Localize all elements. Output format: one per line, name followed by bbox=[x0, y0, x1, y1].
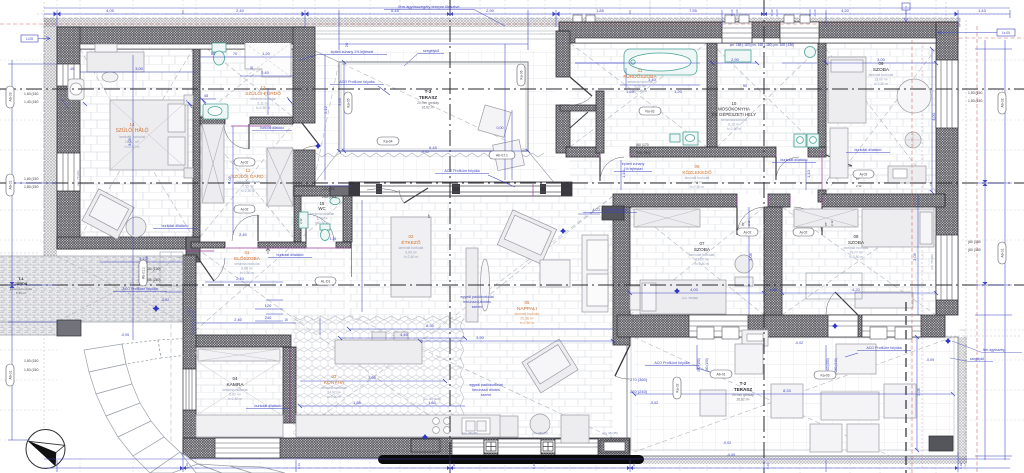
svg-text:5,05: 5,05 bbox=[227, 175, 232, 184]
svg-text:épített zuhany 1% lejtéssel: épített zuhany 1% lejtéssel bbox=[331, 50, 374, 54]
svg-text:3,05: 3,05 bbox=[912, 252, 917, 261]
svg-text:4,20: 4,20 bbox=[841, 8, 850, 13]
svg-text:kerámia burkolat: kerámia burkolat bbox=[222, 388, 247, 392]
svg-text:7,47 m²: 7,47 m² bbox=[691, 181, 703, 185]
svg-text:pm. 78 (90): pm. 78 (90) bbox=[930, 254, 934, 269]
svg-text:14: 14 bbox=[129, 122, 135, 127]
svg-text:KÖZLEKEDŐ: KÖZLEKEDŐ bbox=[682, 169, 712, 176]
svg-text:3,00: 3,00 bbox=[135, 66, 144, 71]
svg-text:70,60: 70,60 bbox=[770, 9, 774, 16]
svg-text:100 (90(: 100 (90( bbox=[322, 187, 335, 191]
svg-text:210 (200): 210 (200) bbox=[826, 358, 830, 372]
svg-text:245 (240(: 245 (240( bbox=[636, 151, 651, 155]
svg-text:02: 02 bbox=[409, 234, 414, 239]
svg-text:0,00: 0,00 bbox=[497, 126, 504, 130]
svg-text:fém ágyösszegély terepre illes: fém ágyösszegély terepre illesztve bbox=[398, 4, 460, 9]
svg-text:Nu-02: Nu-02 bbox=[645, 110, 654, 114]
svg-text:laminált burkolat: laminált burkolat bbox=[119, 135, 145, 139]
svg-text:3,05: 3,05 bbox=[127, 137, 132, 146]
svg-text:245 (240(: 245 (240( bbox=[322, 195, 337, 199]
svg-text:10: 10 bbox=[732, 101, 737, 106]
svg-text:burkolat dilatáció: burkolat dilatáció bbox=[255, 404, 282, 408]
svg-text:Aj-02: Aj-02 bbox=[241, 161, 249, 165]
svg-text:-0,02: -0,02 bbox=[421, 150, 429, 154]
svg-text:Ka-03: Ka-03 bbox=[820, 374, 829, 378]
svg-text:h=2,80 m: h=2,80 m bbox=[240, 271, 254, 275]
svg-text:kerámia burkolat: kerámia burkolat bbox=[721, 118, 746, 122]
svg-text:2,40: 2,40 bbox=[236, 8, 245, 13]
svg-text:270 (360): 270 (360) bbox=[630, 377, 648, 382]
svg-text:8,88 m²: 8,88 m² bbox=[241, 267, 253, 271]
svg-text:180 (150): 180 (150) bbox=[705, 358, 709, 372]
svg-text:245 (240): 245 (240) bbox=[146, 278, 161, 282]
svg-text:pm. 78 (90): pm. 78 (90) bbox=[76, 170, 80, 185]
svg-text:1,80 (150: 1,80 (150 bbox=[24, 185, 38, 189]
svg-text:h=2,80 m: h=2,80 m bbox=[256, 106, 270, 110]
svg-text:45: 45 bbox=[70, 67, 74, 71]
svg-text:5,11 m²: 5,11 m² bbox=[257, 102, 269, 106]
svg-text:kerámia burkolat: kerámia burkolat bbox=[321, 386, 346, 390]
svg-text:TERASZ: TERASZ bbox=[734, 387, 753, 392]
svg-text:1,65: 1,65 bbox=[626, 89, 635, 94]
svg-text:laminált burkolat: laminált burkolat bbox=[515, 312, 540, 316]
svg-text:8,18: 8,18 bbox=[452, 463, 456, 469]
svg-text:70,60: 70,60 bbox=[730, 9, 734, 16]
svg-text:pm. 168 (-180) pm. 168 (-180: pm. 168 (-180) pm. 168 (-180) pm. 168 (-… bbox=[730, 43, 795, 47]
svg-text:23,60: 23,60 bbox=[775, 9, 779, 16]
svg-text:Ka-04: Ka-04 bbox=[383, 140, 392, 144]
svg-text:2,90: 2,90 bbox=[731, 57, 740, 62]
svg-text:1,20: 1,20 bbox=[674, 89, 683, 94]
svg-text:burkolat dilatáció: burkolat dilatáció bbox=[781, 158, 808, 162]
svg-text:1,43: 1,43 bbox=[978, 8, 987, 13]
svg-text:kerámia burkolat: kerámia burkolat bbox=[310, 212, 334, 216]
svg-text:h=2,60 m: h=2,60 m bbox=[327, 395, 341, 399]
svg-text:-0,02: -0,02 bbox=[650, 401, 658, 405]
svg-text:h=2,80 m: h=2,80 m bbox=[520, 321, 534, 325]
svg-text:h=2,80 m: h=2,80 m bbox=[228, 397, 242, 401]
svg-text:Aj-02: Aj-02 bbox=[744, 231, 752, 235]
svg-text:szegélykő: szegélykő bbox=[423, 49, 439, 53]
svg-text:fém ágyösszeg.: fém ágyösszeg. bbox=[983, 348, 1005, 352]
svg-text:épített zuhany: épített zuhany bbox=[622, 162, 645, 166]
svg-text:3,05: 3,05 bbox=[748, 252, 753, 261]
svg-text:35: 35 bbox=[250, 66, 254, 70]
svg-text:260 (240): 260 (240) bbox=[630, 389, 648, 394]
svg-text:06: 06 bbox=[695, 164, 700, 169]
svg-text:egyedi padlóburkolat: egyedi padlóburkolat bbox=[460, 295, 493, 299]
svg-text:2: 2 bbox=[905, 5, 907, 9]
svg-text:13,77 m²: 13,77 m² bbox=[849, 251, 863, 255]
svg-text:(60 (150: (60 (150 bbox=[968, 240, 981, 244]
svg-text:9,16 m²: 9,16 m² bbox=[634, 85, 646, 89]
svg-text:(60 (170: (60 (170 bbox=[636, 143, 649, 147]
svg-text:12: 12 bbox=[246, 168, 251, 173]
svg-text:szerint: szerint bbox=[481, 393, 492, 397]
svg-text:Aj-02: Aj-02 bbox=[241, 208, 249, 212]
svg-text:1,20: 1,20 bbox=[262, 51, 271, 56]
svg-text:SZÜLŐI GARD.: SZÜLŐI GARD. bbox=[231, 173, 265, 180]
svg-text:4,05: 4,05 bbox=[106, 8, 115, 13]
svg-text:8,10: 8,10 bbox=[185, 463, 189, 469]
svg-text:Li-05: Li-05 bbox=[26, 37, 33, 41]
svg-text:20: 20 bbox=[344, 42, 349, 47]
svg-text:08: 08 bbox=[854, 234, 859, 239]
svg-text:laminált burkolat: laminált burkolat bbox=[844, 246, 869, 250]
svg-text:04: 04 bbox=[233, 376, 238, 381]
svg-text:70: 70 bbox=[233, 51, 238, 56]
svg-text:14,67 m²: 14,67 m² bbox=[327, 391, 341, 395]
svg-text:50: 50 bbox=[211, 51, 216, 56]
svg-text:-0,09: -0,09 bbox=[727, 453, 735, 457]
svg-text:8,10: 8,10 bbox=[959, 463, 963, 469]
svg-text:20 mm greslap: 20 mm greslap bbox=[732, 393, 754, 397]
svg-text:3,40: 3,40 bbox=[648, 77, 657, 82]
svg-text:ACO ProfiLine folyóka: ACO ProfiLine folyóka bbox=[339, 80, 374, 84]
svg-text:MOSÓKONYHA: MOSÓKONYHA bbox=[718, 107, 750, 112]
svg-text:-0,02: -0,02 bbox=[161, 298, 169, 302]
svg-text:4,40: 4,40 bbox=[400, 332, 409, 337]
svg-text:1,60: 1,60 bbox=[428, 400, 437, 405]
svg-text:3,90: 3,90 bbox=[476, 335, 485, 340]
svg-text:87°: 87° bbox=[824, 222, 828, 226]
svg-text:13: 13 bbox=[261, 85, 266, 90]
svg-text:2,40: 2,40 bbox=[234, 317, 243, 322]
svg-text:Ka-02: Ka-02 bbox=[676, 383, 680, 392]
svg-text:6,45: 6,45 bbox=[429, 145, 438, 150]
svg-text:ÉS GÉPÉSZETI HELY: ÉS GÉPÉSZETI HELY bbox=[712, 112, 756, 117]
svg-text:160 (150): 160 (150) bbox=[697, 358, 701, 372]
svg-text:05: 05 bbox=[525, 300, 530, 305]
svg-text:2,12: 2,12 bbox=[856, 184, 862, 188]
svg-text:ACO ProfiLine folyóka: ACO ProfiLine folyóka bbox=[444, 169, 479, 173]
svg-text:ACO ProfiLine folyóka: ACO ProfiLine folyóka bbox=[592, 208, 627, 212]
svg-text:2,40: 2,40 bbox=[261, 70, 270, 75]
svg-text:6,45: 6,45 bbox=[391, 8, 400, 13]
svg-text:1,10: 1,10 bbox=[806, 169, 811, 178]
svg-text:h=2,80 m: h=2,80 m bbox=[727, 127, 741, 131]
svg-text:burkolat dilatáció: burkolat dilatáció bbox=[855, 148, 882, 152]
svg-text:beruházói döntés: beruházói döntés bbox=[463, 300, 491, 304]
svg-text:120: 120 bbox=[265, 303, 272, 308]
svg-text:laminált burkolat: laminált burkolat bbox=[685, 176, 710, 180]
svg-text:13,00 m²: 13,00 m² bbox=[874, 78, 888, 82]
svg-text:burkolat dilatáció: burkolat dilatáció bbox=[260, 126, 284, 130]
svg-text:h=2,80 m: h=2,80 m bbox=[849, 255, 863, 259]
svg-text:1,85: 1,85 bbox=[353, 400, 362, 405]
svg-text:Lx-05: Lx-05 bbox=[1002, 31, 1010, 35]
svg-text:1,40 (150: 1,40 (150 bbox=[24, 100, 38, 104]
svg-text:h=2,80 m: h=2,80 m bbox=[241, 189, 255, 193]
svg-text:03: 03 bbox=[332, 374, 337, 379]
svg-text:6,36 m²: 6,36 m² bbox=[16, 291, 26, 295]
svg-text:2,40: 2,40 bbox=[186, 307, 191, 316]
svg-text:8,33: 8,33 bbox=[783, 388, 792, 393]
svg-text:1% lejtéssel: 1% lejtéssel bbox=[623, 167, 642, 171]
svg-text:1,35: 1,35 bbox=[330, 237, 337, 241]
svg-text:burkolat dilatáció: burkolat dilatáció bbox=[162, 224, 189, 228]
svg-text:1,10: 1,10 bbox=[621, 169, 626, 178]
svg-text:h=2,60 m: h=2,60 m bbox=[404, 255, 418, 259]
svg-text:laminált burkolat: laminált burkolat bbox=[869, 73, 894, 77]
svg-text:7,55: 7,55 bbox=[689, 8, 698, 13]
svg-text:egyedi padlóburkolat: egyedi padlóburkolat bbox=[469, 383, 502, 387]
svg-text:AL-D1: AL-D1 bbox=[321, 280, 331, 284]
svg-text:90: 90 bbox=[743, 83, 748, 88]
svg-text:7,53 m²: 7,53 m² bbox=[242, 185, 254, 189]
svg-text:45: 45 bbox=[204, 93, 209, 98]
svg-text:25,38 m²: 25,38 m² bbox=[520, 317, 534, 321]
svg-text:-0,02: -0,02 bbox=[723, 441, 731, 445]
svg-text:-0,05: -0,05 bbox=[121, 333, 129, 337]
svg-text:pm. 38 (45): pm. 38 (45) bbox=[602, 431, 617, 435]
svg-text:87°: 87° bbox=[741, 222, 745, 226]
svg-text:4,00: 4,00 bbox=[931, 112, 936, 121]
svg-text:h=2,80 m: h=2,80 m bbox=[874, 82, 888, 86]
svg-text:2,90: 2,90 bbox=[486, 8, 495, 13]
svg-text:4,20: 4,20 bbox=[852, 287, 861, 292]
svg-text:pm. 38 (45): pm. 38 (45) bbox=[462, 431, 477, 435]
svg-text:1,00: 1,00 bbox=[769, 287, 778, 292]
svg-text:Ab-01: Ab-01 bbox=[9, 180, 13, 189]
svg-text:8,30: 8,30 bbox=[426, 323, 435, 328]
svg-text:20 mm greslap: 20 mm greslap bbox=[417, 101, 439, 105]
svg-text:3,00: 3,00 bbox=[877, 57, 886, 62]
svg-text:JÁRDA: JÁRDA bbox=[14, 281, 27, 286]
svg-text:pm. 38 (45): pm. 38 (45) bbox=[532, 431, 547, 435]
svg-text:2,12: 2,12 bbox=[299, 218, 303, 224]
svg-text:2,12: 2,12 bbox=[747, 220, 751, 226]
svg-text:SZÜLŐI HÁLÓ: SZÜLŐI HÁLÓ bbox=[115, 127, 148, 134]
svg-text:Ka-05: Ka-05 bbox=[347, 98, 351, 107]
svg-text:23,60: 23,60 bbox=[813, 9, 817, 16]
svg-text:Ab-07.1: Ab-07.1 bbox=[496, 154, 508, 158]
svg-text:6,12 m²: 6,12 m² bbox=[728, 123, 740, 127]
svg-text:Aj-02: Aj-02 bbox=[860, 173, 868, 177]
svg-text:9,65 m²: 9,65 m² bbox=[405, 251, 417, 255]
svg-text:beruházói döntés: beruházói döntés bbox=[472, 388, 500, 392]
svg-text:1,70 m²: 1,70 m² bbox=[316, 217, 328, 221]
svg-text:3,69: 3,69 bbox=[368, 375, 377, 380]
svg-text:Ab-01: Ab-01 bbox=[9, 370, 13, 379]
svg-text:130 (120): 130 (120) bbox=[146, 267, 161, 271]
svg-text:ÉTKEZŐ: ÉTKEZŐ bbox=[401, 239, 420, 246]
svg-text:1,50 (150: 1,50 (150 bbox=[968, 99, 982, 103]
svg-text:-0,09: -0,09 bbox=[926, 358, 934, 362]
svg-text:laminált burkolat: laminált burkolat bbox=[399, 246, 424, 250]
svg-text:2,40: 2,40 bbox=[236, 276, 245, 281]
svg-text:Ka-06: Ka-06 bbox=[520, 70, 524, 79]
svg-text:ACO ProfiLine folyóka: ACO ProfiLine folyóka bbox=[654, 361, 689, 365]
svg-text:Ab-02: Ab-02 bbox=[1001, 98, 1005, 107]
svg-text:26,82 m²: 26,82 m² bbox=[736, 398, 750, 402]
svg-text:pm. 78 (90): pm. 78 (90) bbox=[682, 296, 697, 300]
svg-text:ELŐSZOBA: ELŐSZOBA bbox=[234, 255, 261, 262]
svg-text:260 (240): 260 (240) bbox=[834, 358, 838, 372]
svg-text:h=2,80 m: h=2,80 m bbox=[695, 262, 709, 266]
svg-text:szerint: szerint bbox=[472, 305, 483, 309]
svg-text:1,60 (150: 1,60 (150 bbox=[24, 92, 38, 96]
svg-text:burkolat dilatáció: burkolat dilatáció bbox=[277, 253, 304, 257]
svg-text:-0,02: -0,02 bbox=[795, 341, 803, 345]
svg-text:1,50 (150: 1,50 (150 bbox=[24, 368, 38, 372]
svg-text:ACO ProfiLine folyóka: ACO ProfiLine folyóka bbox=[866, 346, 901, 350]
svg-text:23,60: 23,60 bbox=[735, 9, 739, 16]
svg-text:1,50 (150: 1,50 (150 bbox=[24, 359, 38, 363]
svg-text:01: 01 bbox=[245, 250, 250, 255]
svg-text:8,16: 8,16 bbox=[766, 463, 770, 469]
svg-text:h=2,80 m: h=2,80 m bbox=[690, 185, 704, 189]
svg-text:szegélykő: szegélykő bbox=[970, 357, 984, 361]
svg-text:8,16: 8,16 bbox=[297, 463, 301, 469]
svg-text:8,18: 8,18 bbox=[632, 463, 636, 469]
svg-text:SZÜLŐI FÜRDŐ: SZÜLŐI FÜRDŐ bbox=[245, 90, 281, 97]
svg-text:ACO ProfiLine folyóka: ACO ProfiLine folyóka bbox=[122, 287, 157, 291]
svg-text:8,18: 8,18 bbox=[532, 463, 536, 469]
svg-text:1,85: 1,85 bbox=[596, 8, 605, 13]
svg-text:13,20 m²: 13,20 m² bbox=[695, 258, 709, 262]
svg-text:1,50 (150: 1,50 (150 bbox=[968, 91, 982, 95]
svg-text:11: 11 bbox=[638, 68, 643, 73]
svg-text:laminált burkolat: laminált burkolat bbox=[690, 253, 715, 257]
svg-text:kerámia burkolat: kerámia burkolat bbox=[250, 97, 275, 101]
svg-text:h=2,80 m: h=2,80 m bbox=[633, 89, 647, 93]
svg-text:Ab-01.1: Ab-01.1 bbox=[142, 267, 146, 279]
svg-text:2,12: 2,12 bbox=[323, 105, 328, 114]
svg-text:T-2: T-2 bbox=[740, 381, 747, 386]
svg-text:3,05: 3,05 bbox=[916, 387, 921, 396]
svg-text:2,40: 2,40 bbox=[239, 232, 248, 237]
svg-text:Aj-02: Aj-02 bbox=[800, 231, 808, 235]
svg-text:Ab-01: Ab-01 bbox=[1001, 248, 1005, 257]
svg-text:TERASZ: TERASZ bbox=[419, 95, 438, 100]
svg-text:87°: 87° bbox=[427, 214, 431, 218]
svg-text:WC: WC bbox=[318, 206, 325, 211]
svg-text:T-1: T-1 bbox=[18, 277, 24, 281]
svg-text:1,60 (150: 1,60 (150 bbox=[24, 177, 38, 181]
svg-text:h=2,80 m: h=2,80 m bbox=[315, 221, 329, 225]
svg-text:07: 07 bbox=[700, 241, 705, 246]
svg-text:Ab-03: Ab-03 bbox=[9, 92, 13, 101]
svg-text:laminált burkolat: laminált burkolat bbox=[236, 180, 261, 184]
svg-text:2,12: 2,12 bbox=[830, 220, 834, 226]
svg-text:5,82 m²: 5,82 m² bbox=[229, 393, 241, 397]
svg-text:T-3: T-3 bbox=[425, 89, 432, 94]
svg-text:16,62 m²: 16,62 m² bbox=[421, 106, 435, 110]
svg-text:240: 240 bbox=[265, 315, 272, 320]
svg-text:(60 (150: (60 (150 bbox=[968, 248, 981, 252]
svg-text:kerámia burkolat: kerámia burkolat bbox=[234, 262, 259, 266]
svg-text:70,60: 70,60 bbox=[808, 9, 812, 16]
svg-text:Ab-01: Ab-01 bbox=[716, 373, 725, 377]
svg-text:4,00: 4,00 bbox=[690, 287, 699, 292]
svg-text:15: 15 bbox=[284, 318, 288, 322]
svg-text:3,65: 3,65 bbox=[337, 97, 342, 106]
